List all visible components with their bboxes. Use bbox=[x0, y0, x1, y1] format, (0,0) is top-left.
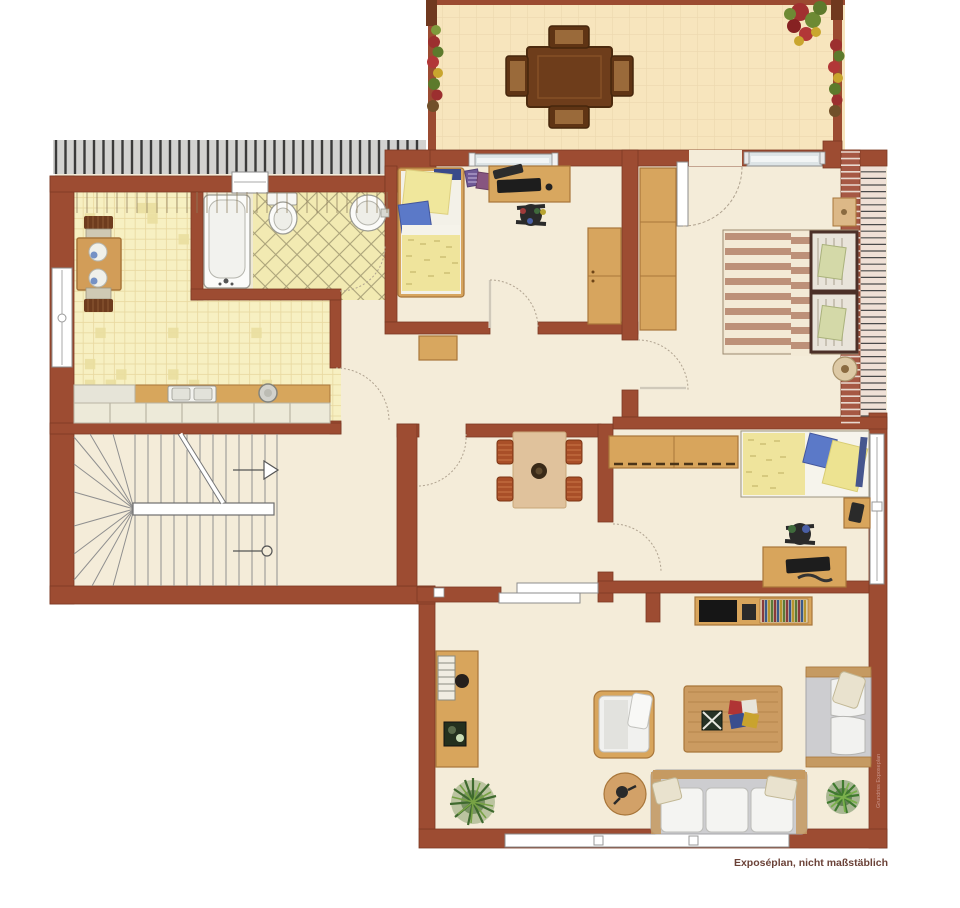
svg-text:Grundriss Exposeplan: Grundriss Exposeplan bbox=[876, 754, 882, 808]
svg-text:Exposéplan, nicht maßstäblich: Exposéplan, nicht maßstäblich bbox=[734, 857, 888, 869]
